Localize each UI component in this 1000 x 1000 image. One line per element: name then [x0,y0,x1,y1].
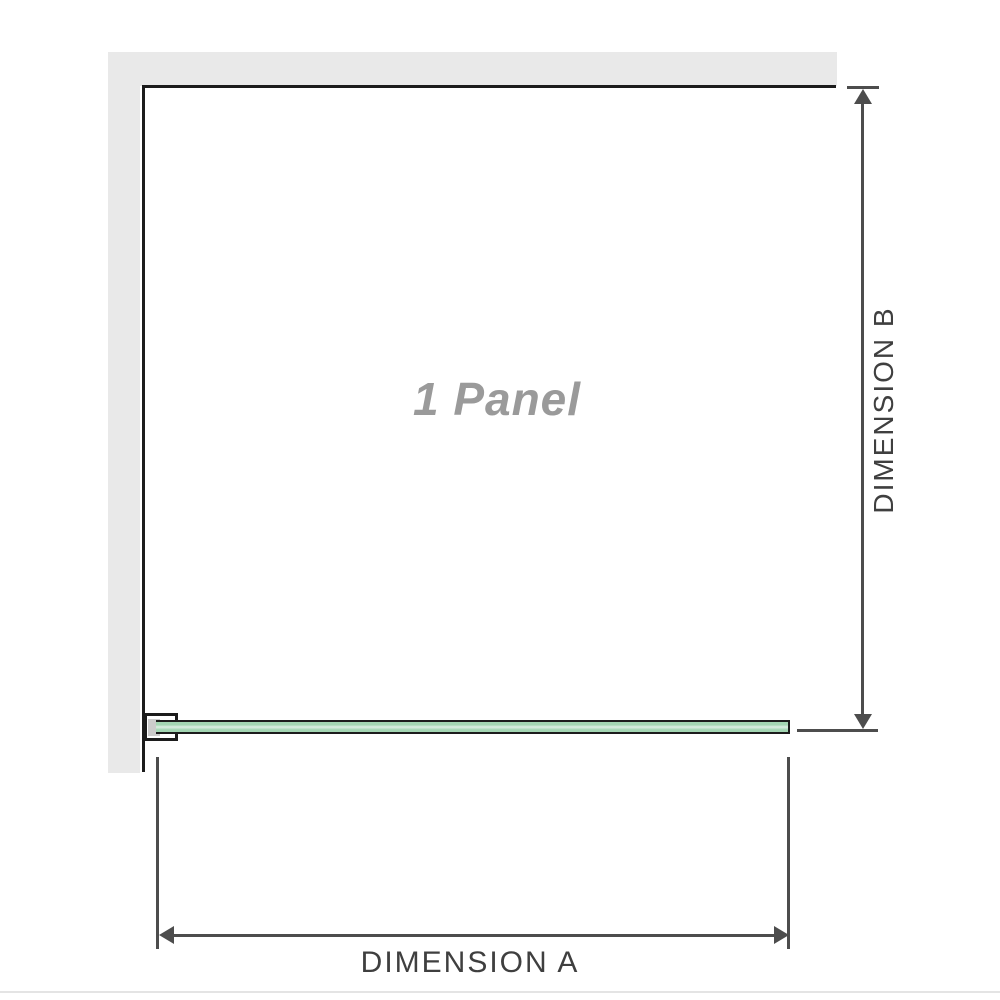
shower-panel-dimension-diagram: DIMENSION B DIMENSION A 1 Panel [0,0,1000,1000]
dimension-a-right-extension-line [787,757,790,949]
dimension-b-bottom-tick [797,729,878,732]
dimension-a-left-extension-line [156,757,159,949]
dimension-a-arrowhead-right-icon [774,926,789,944]
image-bottom-edge [0,991,1000,993]
panel-outline-left-edge [142,85,145,772]
dimension-b-arrowhead-down-icon [854,714,872,729]
panel-count-label: 1 Panel [413,372,581,426]
dimension-b-arrowhead-up-icon [854,89,872,104]
glass-panel-bar [156,720,790,734]
dimension-a-label: DIMENSION A [361,946,580,980]
dimension-a-arrowhead-left-icon [159,926,174,944]
panel-outline-top-edge [143,85,836,88]
dimension-b-line [861,98,864,720]
dimension-a-line [170,934,778,937]
wall-left [108,52,140,773]
dimension-b-label: DIMENSION B [868,306,900,513]
wall-top [108,52,837,86]
